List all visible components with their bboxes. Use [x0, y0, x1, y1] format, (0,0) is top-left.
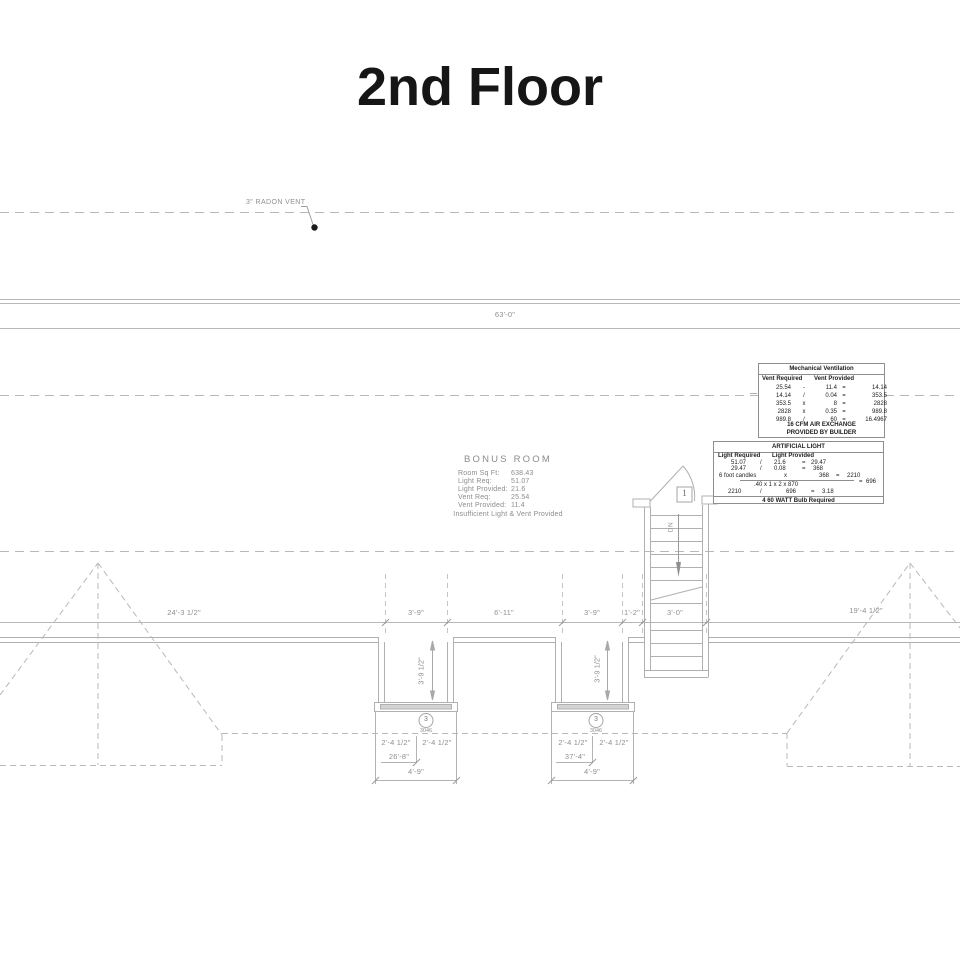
dim-window-half: 2'-4 1/2"	[422, 738, 451, 747]
mech-table-title: Mechanical Ventilation	[759, 364, 884, 375]
light-cell: 696	[866, 479, 876, 486]
light-cell: 3.18	[822, 489, 834, 496]
mech-col-required: Vent Required	[762, 376, 802, 383]
bonus-value: 638.43	[511, 470, 534, 478]
dim-alcove-2-width: 3'-9"	[584, 608, 600, 617]
window-symbols	[375, 703, 635, 728]
dim-window-half: 2'-4 1/2"	[599, 738, 628, 747]
light-table-title: ARTIFICIAL LIGHT	[714, 442, 883, 453]
mech-row: 2828x0.35=989.8	[761, 408, 882, 416]
light-cell: x	[784, 473, 787, 480]
mech-footer-line1: 16 CFM AIR EXCHANGE	[759, 422, 884, 430]
dormer-roof-dashed	[0, 563, 960, 767]
wall-band	[0, 637, 960, 643]
page-title: 2nd Floor	[357, 56, 603, 118]
mech-row: 353.5x8=2828	[761, 400, 882, 408]
light-cell: =	[859, 479, 863, 486]
radon-vent-marker	[301, 207, 318, 231]
window-tag-number: 3	[594, 716, 598, 723]
window-tag-size: 3046	[420, 728, 432, 734]
light-cell: 6 foot candles	[719, 473, 756, 480]
mech-col-provided: Vent Provided	[814, 376, 854, 383]
light-cell: .40 x 1 x 2 x 870	[754, 482, 798, 489]
bonus-label: Vent Req:	[445, 494, 511, 502]
bonus-label: Vent Provided:	[445, 502, 511, 510]
dim-window-half: 2'-4 1/2"	[381, 738, 410, 747]
window-tag-number: 3	[424, 716, 428, 723]
mech-table-footer: 16 CFM AIR EXCHANGE PROVIDED BY BUILDER	[759, 422, 884, 437]
dim-run-right: 37'-4"	[565, 752, 585, 761]
light-cell: 2210	[728, 489, 741, 496]
bonus-value: 25.54	[511, 494, 530, 502]
light-cell: =	[836, 473, 840, 480]
bonus-label: Light Req:	[445, 478, 511, 486]
stair-down-label: DN	[668, 522, 675, 532]
bonus-label: Room Sq Ft:	[445, 470, 511, 478]
bonus-value: 11.4	[511, 502, 525, 510]
stairwell	[633, 466, 717, 678]
dim-window-width: 4'-9"	[584, 767, 600, 776]
bonus-room-row: Vent Req: 25.54	[445, 494, 571, 502]
alcove-depth-dimensions	[431, 641, 610, 700]
dim-alcove-2-depth: 3'-9 1/2"	[593, 655, 602, 682]
bonus-room-row: Vent Provided: 11.4	[445, 502, 571, 510]
dim-right-span: 19'-4 1/2"	[849, 606, 883, 615]
bonus-value: 51.07	[511, 478, 530, 486]
light-cell: 368	[819, 473, 829, 480]
artificial-light-table: ARTIFICIAL LIGHT Light Required Light Pr…	[713, 441, 884, 504]
overall-width-dimension: 63'-0"	[495, 310, 515, 319]
dim-wall-gap: 1'-2"	[624, 608, 640, 617]
bonus-room-summary: BONUS ROOM Room Sq Ft: 638.43 Light Req:…	[445, 454, 571, 519]
bonus-label: Light Provided:	[445, 486, 511, 494]
dim-window-width: 4'-9"	[408, 767, 424, 776]
mech-row: 14.14/0.04=353.5	[761, 392, 882, 400]
light-cell: =	[802, 466, 806, 473]
window-tag-size: 3046	[590, 728, 602, 734]
floor-plan-sheet: 2nd Floor 3" RADON VENT 63'-0" 24'-3 1/2…	[0, 0, 960, 960]
dim-alcove-1-width: 3'-9"	[408, 608, 424, 617]
dimension-extension-lines	[386, 574, 707, 637]
dim-left-span: 24'-3 1/2"	[167, 608, 201, 617]
light-cell: /	[760, 466, 762, 473]
bonus-room-row: Light Provided: 21.6	[445, 486, 571, 494]
dim-run-left: 26'-8"	[389, 752, 409, 761]
bonus-value: 21.6	[511, 486, 525, 494]
light-table-footer: 4 60 WATT Bulb Required	[714, 498, 883, 505]
mech-row: 25.54-11.4=14.14	[761, 384, 882, 392]
mechanical-ventilation-table: Mechanical Ventilation Vent Required Ven…	[758, 363, 885, 438]
bonus-room-row: Light Req: 51.07	[445, 478, 571, 486]
dim-window-half: 2'-4 1/2"	[558, 738, 587, 747]
dim-alcove-1-depth: 3'-9 1/2"	[417, 657, 426, 684]
light-cell: /	[760, 489, 762, 496]
dim-between-alcoves: 6'-11"	[494, 608, 514, 617]
mech-footer-line2: PROVIDED BY BUILDER	[759, 430, 884, 438]
bonus-room-note: Insufficient Light & Vent Provided	[445, 511, 571, 519]
dim-stair-width: 3'-0"	[667, 608, 683, 617]
bonus-room-title: BONUS ROOM	[445, 454, 571, 465]
radon-vent-label: 3" RADON VENT	[246, 199, 305, 206]
bonus-room-row: Room Sq Ft: 638.43	[445, 470, 571, 478]
light-cell: 696	[786, 489, 796, 496]
door-tag: 1	[677, 487, 692, 502]
light-cell: =	[811, 489, 815, 496]
